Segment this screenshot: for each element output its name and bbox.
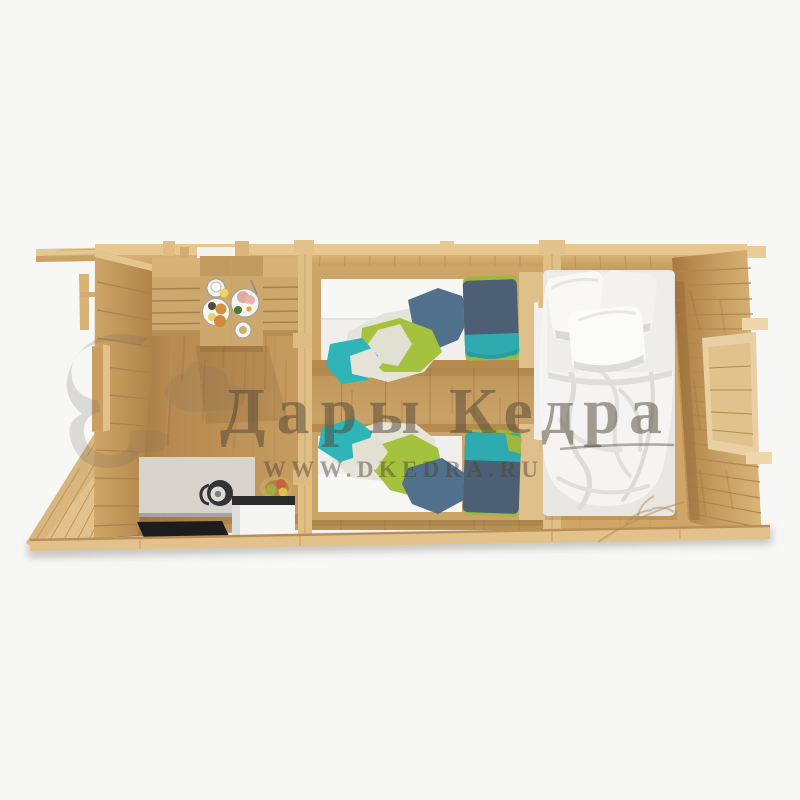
svg-text:Кедра: Кедра bbox=[449, 375, 662, 448]
svg-text:Дары: Дары bbox=[220, 375, 420, 448]
